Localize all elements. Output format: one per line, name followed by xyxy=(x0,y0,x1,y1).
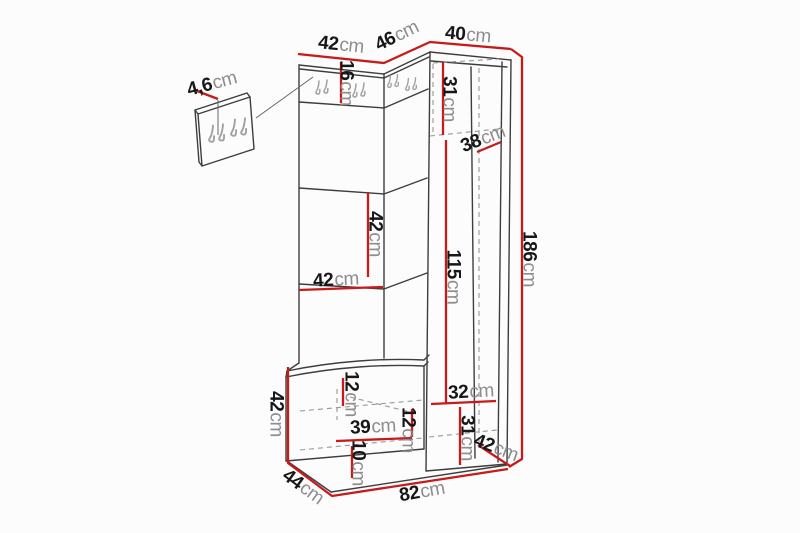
dim-value: 82 xyxy=(398,482,422,506)
dim-bench-bottom-section: 10cm xyxy=(349,440,368,486)
coat-hook-icon xyxy=(209,124,224,142)
dim-panel-width: 42cm xyxy=(313,269,360,290)
dim-unit: cm xyxy=(266,412,287,437)
diagram-canvas: 42cm 46cm 40cm 4,6cm 16cm 31cm 38cm 42cm… xyxy=(0,0,800,533)
dim-top-width-left: 42cm xyxy=(317,33,365,57)
dim-lower-section-height: 31cm xyxy=(458,415,477,461)
dim-unit: cm xyxy=(336,81,357,106)
dim-lower-mid-section: 12cm xyxy=(399,407,418,453)
dim-lower-shelf-width: 32cm xyxy=(448,381,495,402)
dim-unit: cm xyxy=(519,262,540,287)
dim-bench-interior-width: 39cm xyxy=(350,416,397,437)
dim-value: 115 xyxy=(443,250,464,279)
dim-value: 31 xyxy=(457,415,478,435)
dim-value: 12 xyxy=(341,371,362,391)
dim-unit: cm xyxy=(341,392,362,417)
dim-unit: cm xyxy=(443,280,464,305)
dim-unit: cm xyxy=(371,415,397,437)
coat-hook-icons xyxy=(209,75,416,142)
dim-unit: cm xyxy=(398,428,419,453)
dim-mirror-section-height: 42cm xyxy=(366,211,385,257)
dim-value: 42 xyxy=(365,211,386,231)
leader-line xyxy=(256,77,313,118)
dim-bench-top-section: 12cm xyxy=(342,371,361,417)
dim-value: 186 xyxy=(519,231,540,262)
dim-unit: cm xyxy=(365,232,386,257)
dim-interior-height: 115cm xyxy=(444,250,463,305)
coat-hook-icon xyxy=(406,78,417,91)
dim-top-width-right: 40cm xyxy=(444,24,491,47)
dim-value: 42 xyxy=(266,391,287,411)
dim-unit: cm xyxy=(469,380,495,402)
dim-value: 10 xyxy=(348,440,369,460)
dim-upper-section-height: 31cm xyxy=(440,76,459,122)
dim-unit: cm xyxy=(348,461,369,486)
dim-unit: cm xyxy=(334,268,360,290)
dim-unit: cm xyxy=(439,97,460,122)
dim-total-height: 186cm xyxy=(520,231,539,287)
dim-value: 42 xyxy=(317,32,339,55)
dim-unit: cm xyxy=(419,478,447,503)
coat-hook-icon xyxy=(388,75,399,88)
dim-hook-strip-height: 16cm xyxy=(337,60,356,106)
dim-value: 39 xyxy=(350,417,371,439)
dim-value: 12 xyxy=(398,407,419,427)
furniture-line-drawing xyxy=(0,0,800,533)
dim-value: 42 xyxy=(313,270,334,292)
coat-hook-icon xyxy=(316,80,328,94)
dim-value: 40 xyxy=(444,23,466,46)
dim-unit: cm xyxy=(465,24,491,47)
dim-value: 32 xyxy=(448,382,469,404)
dim-value: 31 xyxy=(439,76,460,96)
dim-value: 16 xyxy=(336,60,357,80)
coat-hook-icon xyxy=(231,118,246,136)
dim-bench-height: 42cm xyxy=(267,391,286,437)
dim-unit: cm xyxy=(338,34,365,57)
